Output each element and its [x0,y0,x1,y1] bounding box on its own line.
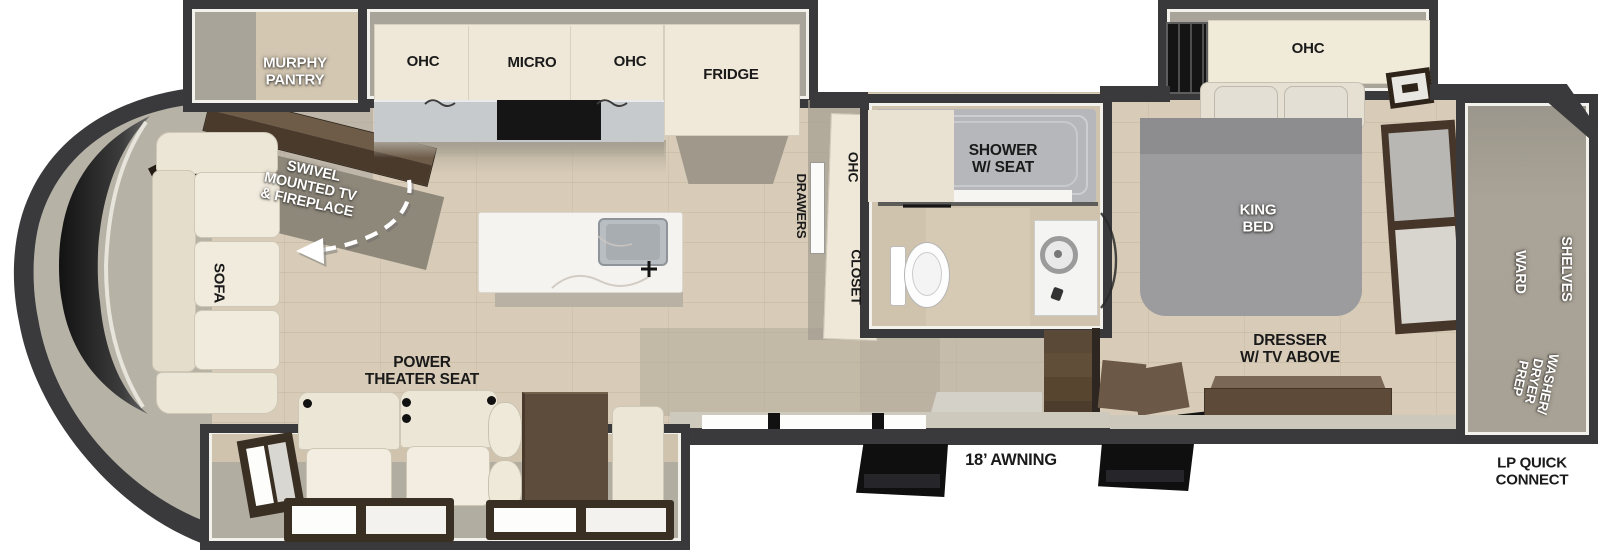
vanity-drain [1054,250,1062,258]
label-drawers: DRAWERS [794,173,808,238]
cupholder [402,398,411,407]
cabinet-divider [468,26,469,100]
drawer-stack [810,162,825,254]
label-lp-quick-connect: LP QUICK CONNECT [1496,456,1569,489]
floorplan: MURPHY PANTRY SWIVEL MOUNTED TV & FIREPL… [0,0,1600,559]
window-pane [366,506,446,534]
island-shadow [495,292,683,307]
label-closet: CLOSET [848,249,863,305]
label-ward: WARD [1511,250,1527,294]
sofa-back [152,170,196,372]
sofa-armrest-top [156,132,278,174]
cupholder [402,414,411,423]
sofa-cushion [194,310,280,370]
entry-step-edge [1106,470,1184,482]
label-ohc-bedroom: OHC [1292,41,1325,58]
entry-step [856,444,948,497]
window-pane [1395,226,1461,324]
label-ohc-kitchen-left: OHC [407,54,440,71]
entry-step-edge [864,474,940,488]
bedroom-steps [1044,330,1094,425]
theater-seat-cushion [406,446,490,506]
shower-glass [878,202,1098,206]
bath-cabinet [868,110,954,202]
cupholder [303,399,312,408]
label-sofa: SOFA [210,263,227,303]
sofa-cushion [194,241,280,307]
bedroom-bottom-wall [1102,429,1470,444]
label-micro: MICRO [508,55,557,72]
top-wall [1100,86,1170,102]
cabinet-divider [570,26,571,100]
bottom-window [884,415,926,429]
theater-seat-back [298,392,400,450]
bedroom-small-window [1386,67,1435,109]
dinette-bench [612,406,664,510]
label-ohc-hall: OHC [845,152,860,183]
window-post [872,413,884,429]
slide-window [284,498,454,542]
bed-fold [1140,118,1362,154]
bedroom-platform [1130,362,1189,416]
island-sink-basin [606,224,660,260]
window-pane [494,508,576,532]
label-murphy-pantry: MURPHY PANTRY [263,56,327,89]
entry-step [1098,444,1194,491]
slide-window [486,500,674,540]
window-pane [1388,129,1454,221]
bedroom-bottom-wall-top [1102,415,1470,429]
sofa-armrest-bottom [156,372,278,414]
bottom-wall [670,428,1110,445]
cooktop [497,100,601,140]
label-shower: SHOWER W/ SEAT [969,142,1038,176]
cupholder [487,396,496,405]
toilet-bowl [912,252,942,296]
window-post [768,413,780,429]
label-ohc-kitchen-right: OHC [614,54,647,71]
label-dresser: DRESSER W/ TV ABOVE [1240,332,1340,366]
window-pane [586,508,666,532]
label-power-theater-seat: POWER THEATER SEAT [365,354,479,388]
dinette-chair [488,402,522,458]
label-king-bed: KING BED [1240,203,1277,236]
label-fridge: FRIDGE [703,67,758,84]
label-awning: 18’ AWNING [965,451,1057,469]
label-shelves: SHELVES [1557,236,1573,301]
bottom-window [780,415,872,429]
bottom-window [702,415,768,429]
window-pane [292,506,356,534]
counter-shadow [374,142,664,158]
theater-seat-back [400,390,498,448]
top-wall [810,92,868,108]
